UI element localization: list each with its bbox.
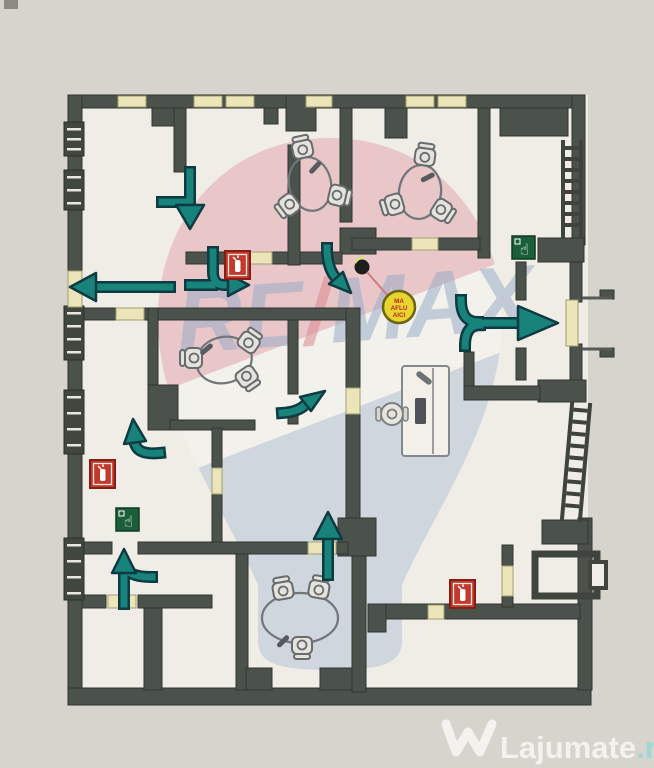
- svg-text:MA: MA: [394, 298, 404, 305]
- floor-plan-photo: RE/MAX: [0, 0, 654, 768]
- svg-text:☝: ☝: [124, 513, 133, 531]
- svg-text:AICI: AICI: [393, 312, 406, 319]
- you-are-here-badge: MA AFLU AICI: [383, 291, 415, 323]
- manual-call-point-icon-2: ☝: [116, 508, 139, 531]
- fire-extinguisher-icon-3: [450, 580, 475, 608]
- fire-extinguisher-icon-2: [90, 460, 115, 488]
- manual-call-point-icon-1: ☝: [512, 236, 535, 259]
- fire-extinguisher-icon-1: [225, 251, 250, 279]
- svg-text:AFLU: AFLU: [391, 305, 408, 312]
- svg-text:☝: ☝: [520, 241, 529, 259]
- corner-artifact: [4, 0, 18, 9]
- lajumate-logo-text: Lajumate.ro: [500, 730, 654, 765]
